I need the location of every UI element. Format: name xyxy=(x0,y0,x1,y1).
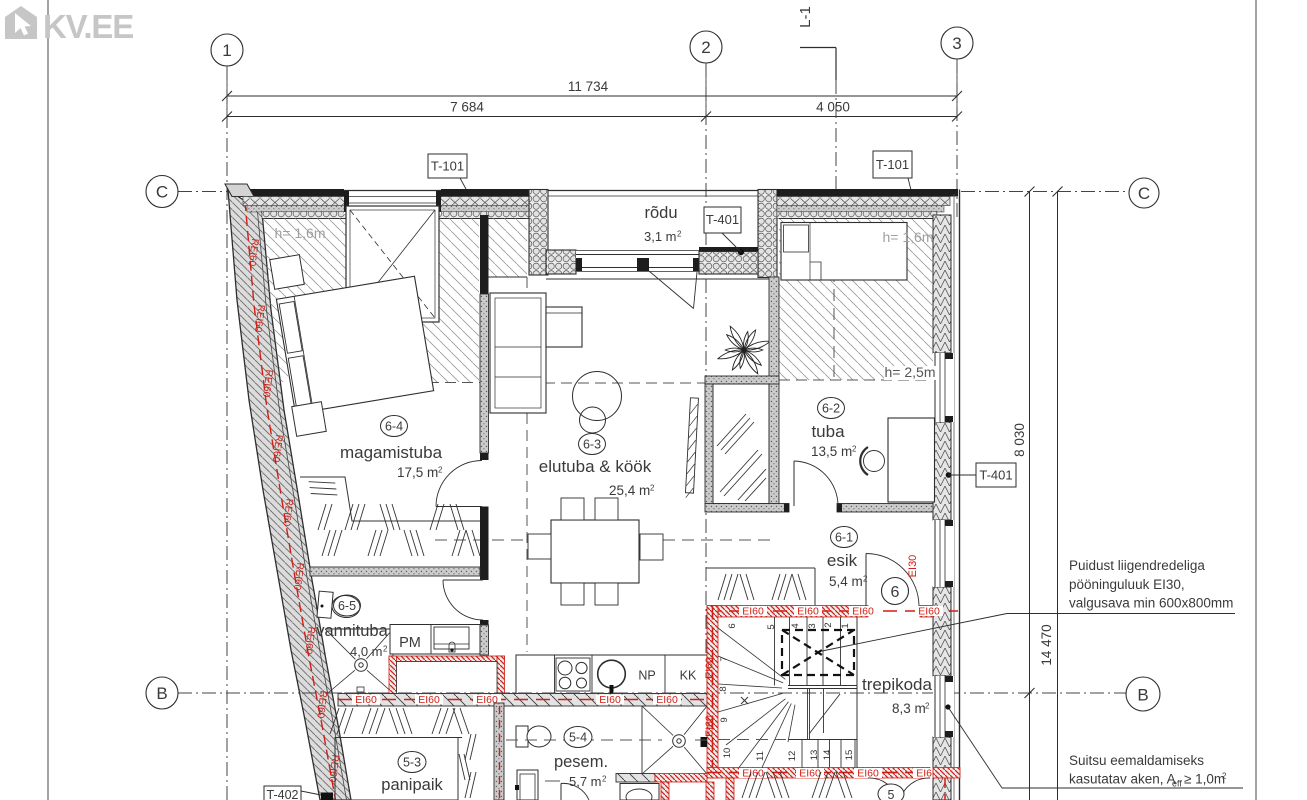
svg-text:PM: PM xyxy=(399,635,421,651)
svg-text:EI30: EI30 xyxy=(907,555,919,578)
svg-text:Suitsu eemaldamiseks: Suitsu eemaldamiseks xyxy=(1069,753,1204,768)
svg-text:6-4: 6-4 xyxy=(385,420,403,434)
svg-text:8 030: 8 030 xyxy=(1012,423,1027,457)
svg-text:6: 6 xyxy=(891,584,900,601)
svg-text:pööninguluuk EI30,: pööninguluuk EI30, xyxy=(1069,577,1185,592)
svg-text:6-3: 6-3 xyxy=(583,438,601,452)
svg-text:11: 11 xyxy=(755,751,766,761)
svg-text:EI60: EI60 xyxy=(852,606,874,618)
svg-text:magamistuba: magamistuba xyxy=(340,443,443,462)
svg-text:≥ 1,0m: ≥ 1,0m xyxy=(1184,772,1225,787)
svg-text:B: B xyxy=(1137,686,1148,705)
svg-text:4 050: 4 050 xyxy=(816,100,850,115)
svg-text:2: 2 xyxy=(701,38,710,57)
svg-text:T-401: T-401 xyxy=(979,468,1012,483)
svg-text:T-101: T-101 xyxy=(431,159,464,174)
svg-text:2: 2 xyxy=(1222,772,1227,781)
svg-text:2: 2 xyxy=(438,466,443,475)
svg-text:kasutatav aken, A: kasutatav aken, A xyxy=(1069,772,1176,787)
svg-text:5: 5 xyxy=(766,624,777,629)
svg-text:2: 2 xyxy=(650,484,655,493)
svg-text:6-2: 6-2 xyxy=(822,402,840,416)
svg-text:7 684: 7 684 xyxy=(450,100,484,115)
svg-text:T-401: T-401 xyxy=(706,212,739,227)
svg-text:8: 8 xyxy=(718,686,729,691)
svg-text:15: 15 xyxy=(844,750,855,761)
svg-text:EI60: EI60 xyxy=(797,606,819,618)
svg-text:1: 1 xyxy=(840,623,851,628)
svg-text:25,4 m: 25,4 m xyxy=(609,483,650,498)
svg-text:trepikoda: trepikoda xyxy=(862,675,932,694)
svg-text:3,1 m: 3,1 m xyxy=(644,229,677,244)
svg-text:EI60: EI60 xyxy=(799,768,821,780)
svg-text:9: 9 xyxy=(719,717,730,722)
svg-text:EI60: EI60 xyxy=(742,606,764,618)
svg-text:2: 2 xyxy=(852,445,857,454)
svg-text:tuba: tuba xyxy=(811,422,845,441)
svg-text:7: 7 xyxy=(719,656,730,661)
svg-text:elutuba & köök: elutuba & köök xyxy=(539,457,652,476)
svg-text:h= 2,5m: h= 2,5m xyxy=(885,364,936,380)
svg-text:EI60: EI60 xyxy=(656,694,678,706)
svg-text:6-1: 6-1 xyxy=(835,531,853,545)
svg-text:L-1: L-1 xyxy=(797,6,814,28)
svg-text:5-3: 5-3 xyxy=(403,756,421,770)
svg-text:12: 12 xyxy=(787,751,798,762)
svg-text:T-101: T-101 xyxy=(876,157,909,172)
svg-text:5,7 m: 5,7 m xyxy=(569,774,602,789)
svg-text:EI60: EI60 xyxy=(704,657,716,679)
svg-text:14 470: 14 470 xyxy=(1039,624,1054,665)
svg-text:EI60: EI60 xyxy=(918,606,940,618)
svg-text:T-402: T-402 xyxy=(267,788,299,800)
svg-text:10: 10 xyxy=(722,748,733,759)
svg-text:B: B xyxy=(156,684,167,703)
svg-text:Puidust liigendredeliga: Puidust liigendredeliga xyxy=(1069,558,1205,573)
svg-text:h= 1,6m: h= 1,6m xyxy=(883,229,934,245)
svg-text:KV.EE: KV.EE xyxy=(43,8,133,45)
svg-text:13: 13 xyxy=(809,750,820,761)
svg-text:eff: eff xyxy=(1172,779,1182,789)
svg-text:pesem.: pesem. xyxy=(554,753,608,771)
svg-text:14: 14 xyxy=(822,750,833,761)
svg-text:h= 1,6m: h= 1,6m xyxy=(275,225,326,241)
svg-text:EI60: EI60 xyxy=(418,694,440,706)
svg-text:2: 2 xyxy=(383,645,388,654)
svg-text:C: C xyxy=(156,183,168,202)
svg-text:NP: NP xyxy=(638,669,655,683)
svg-text:valgusava min 600x800mm: valgusava min 600x800mm xyxy=(1069,596,1233,611)
svg-text:4: 4 xyxy=(790,623,801,628)
svg-text:1: 1 xyxy=(222,41,231,60)
svg-text:3: 3 xyxy=(807,623,818,628)
svg-text:11 734: 11 734 xyxy=(568,79,609,94)
svg-text:5: 5 xyxy=(888,788,895,800)
svg-text:C: C xyxy=(1138,184,1150,203)
svg-text:5,4 m: 5,4 m xyxy=(829,574,863,589)
svg-text:8,3 m: 8,3 m xyxy=(892,701,926,716)
svg-text:17,5 m: 17,5 m xyxy=(397,465,438,480)
svg-text:3: 3 xyxy=(952,34,961,53)
svg-text:EI60: EI60 xyxy=(355,694,377,706)
svg-text:6: 6 xyxy=(727,623,738,628)
svg-text:rõdu: rõdu xyxy=(644,204,677,222)
svg-text:EI60: EI60 xyxy=(704,715,716,737)
svg-text:panipaik: panipaik xyxy=(381,776,443,794)
svg-text:vannituba: vannituba xyxy=(316,622,388,640)
svg-text:2: 2 xyxy=(925,702,930,711)
svg-text:2: 2 xyxy=(823,622,834,627)
svg-text:2: 2 xyxy=(677,230,682,239)
svg-text:13,5 m: 13,5 m xyxy=(811,444,852,459)
svg-text:4,0 m: 4,0 m xyxy=(350,644,383,659)
svg-text:EI60: EI60 xyxy=(742,768,764,780)
svg-text:esik: esik xyxy=(827,551,858,570)
svg-text:KK: KK xyxy=(680,669,697,683)
svg-text:2: 2 xyxy=(602,775,607,784)
svg-text:6-5: 6-5 xyxy=(338,599,356,613)
svg-text:EI60: EI60 xyxy=(599,694,621,706)
svg-text:5-4: 5-4 xyxy=(569,731,587,745)
